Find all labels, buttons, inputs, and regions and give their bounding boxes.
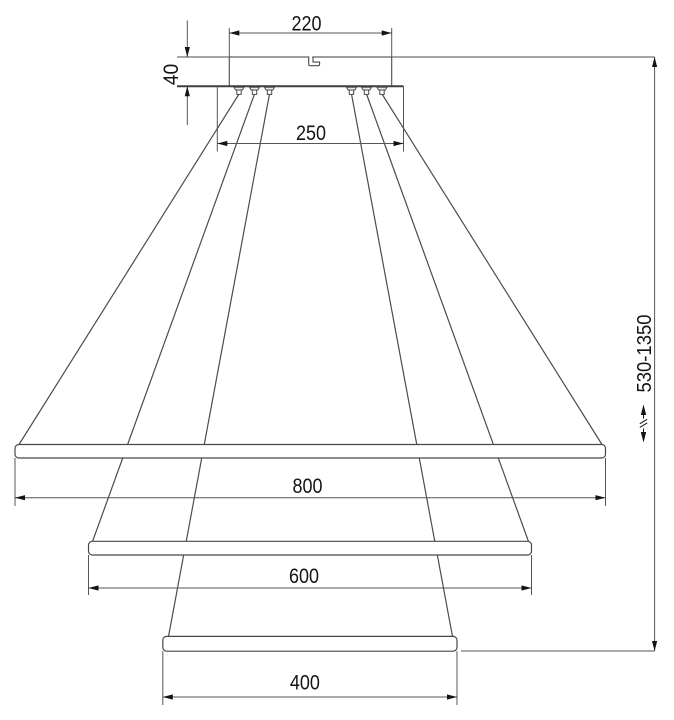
svg-text:250: 250 <box>296 122 326 145</box>
svg-text:600: 600 <box>289 565 319 588</box>
svg-text:220: 220 <box>292 12 322 35</box>
svg-text:530-1350: 530-1350 <box>634 315 656 393</box>
svg-text:800: 800 <box>293 475 323 498</box>
svg-text:400: 400 <box>290 671 320 694</box>
svg-text:40: 40 <box>160 64 183 86</box>
